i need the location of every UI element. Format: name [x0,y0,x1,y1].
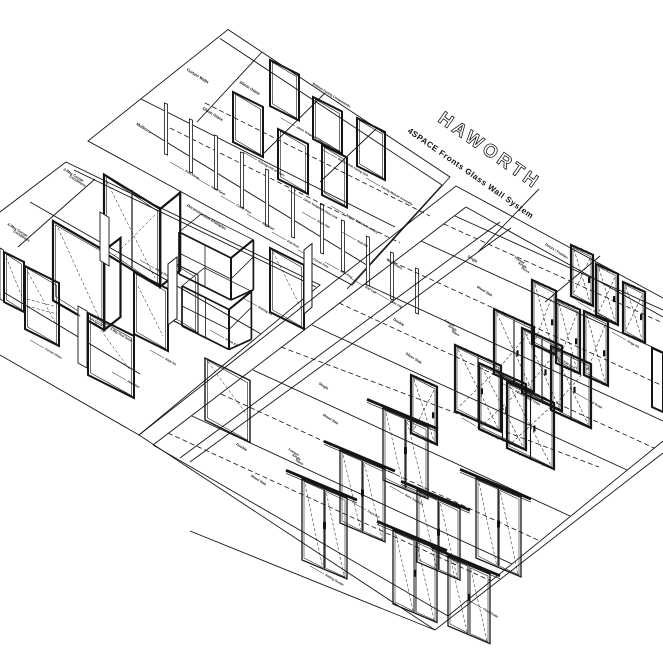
svg-text:Double: Double [235,442,247,452]
svg-text:Double Frame Kit: Double Frame Kit [476,425,500,441]
svg-text:Wood Slab: Wood Slab [322,413,339,426]
svg-text:Doors: Doors [521,266,531,274]
svg-text:Curtain Walls: Curtain Walls [186,67,211,85]
svg-text:Double: Double [392,317,404,327]
svg-text:Sliding Double: Sliding Double [324,573,344,587]
svg-text:Glass: Glass [295,458,305,466]
svg-text:Frame Kit: Frame Kit [224,337,238,347]
svg-text:Glazing Unit w/ Seals: Glazing Unit w/ Seals [257,159,285,178]
svg-text:Post 75mm: Post 75mm [210,185,226,197]
svg-text:Wall Users: Wall Users [386,258,404,271]
svg-text:Floor Guide: Floor Guide [482,607,499,619]
svg-text:Wood Slab: Wood Slab [250,474,267,487]
svg-text:Bottom Rail Facing Unit: Bottom Rail Facing Unit [337,157,368,177]
svg-text:10mm Glass: 10mm Glass [238,79,261,96]
svg-text:Track Ref: Track Ref [366,509,380,519]
svg-text:Corner Glass: Corner Glass [44,347,63,360]
svg-text:HAWORTH: HAWORTH [435,107,545,193]
svg-text:Slim Post: Slim Post [339,269,353,279]
svg-text:Single: Single [318,382,329,391]
svg-text:Facing Module Assembly: Facing Module Assembly [380,185,413,207]
svg-text:Glass: Glass [451,329,461,337]
svg-text:Bottom Facing Components: Bottom Facing Components [312,82,352,109]
svg-text:Wood Slab: Wood Slab [476,285,493,298]
svg-text:End Post: End Post [286,239,299,249]
svg-text:Glass Slab: Glass Slab [405,352,423,366]
svg-text:Slide Kit: Slide Kit [164,357,176,366]
svg-text:Mullions: Mullions [136,121,153,134]
